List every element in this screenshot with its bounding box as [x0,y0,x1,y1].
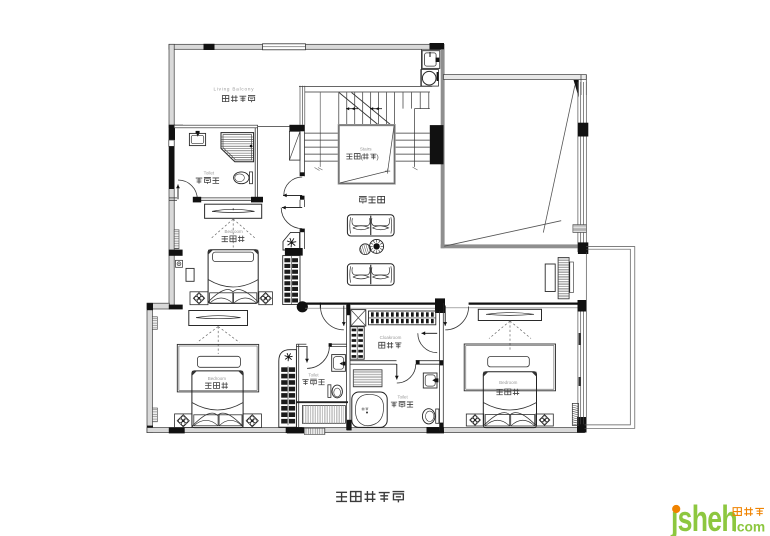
svg-text:Toilet: Toilet [204,170,215,175]
svg-text:Living Balcony: Living Balcony [213,86,254,91]
svg-text:Toilet: Toilet [397,394,408,399]
svg-text:Bedroom: Bedroom [499,380,518,385]
svg-text:Bedroom: Bedroom [208,376,227,381]
svg-text:.com: .com [733,520,765,535]
svg-text:): ) [376,154,378,161]
svg-text:Toilet: Toilet [308,372,319,377]
svg-text:Bedroom: Bedroom [224,229,243,234]
svg-text:Cloakroom: Cloakroom [380,335,402,340]
svg-text:jsheh: jsheh [670,498,737,536]
svg-text:Stairs: Stairs [360,146,372,151]
